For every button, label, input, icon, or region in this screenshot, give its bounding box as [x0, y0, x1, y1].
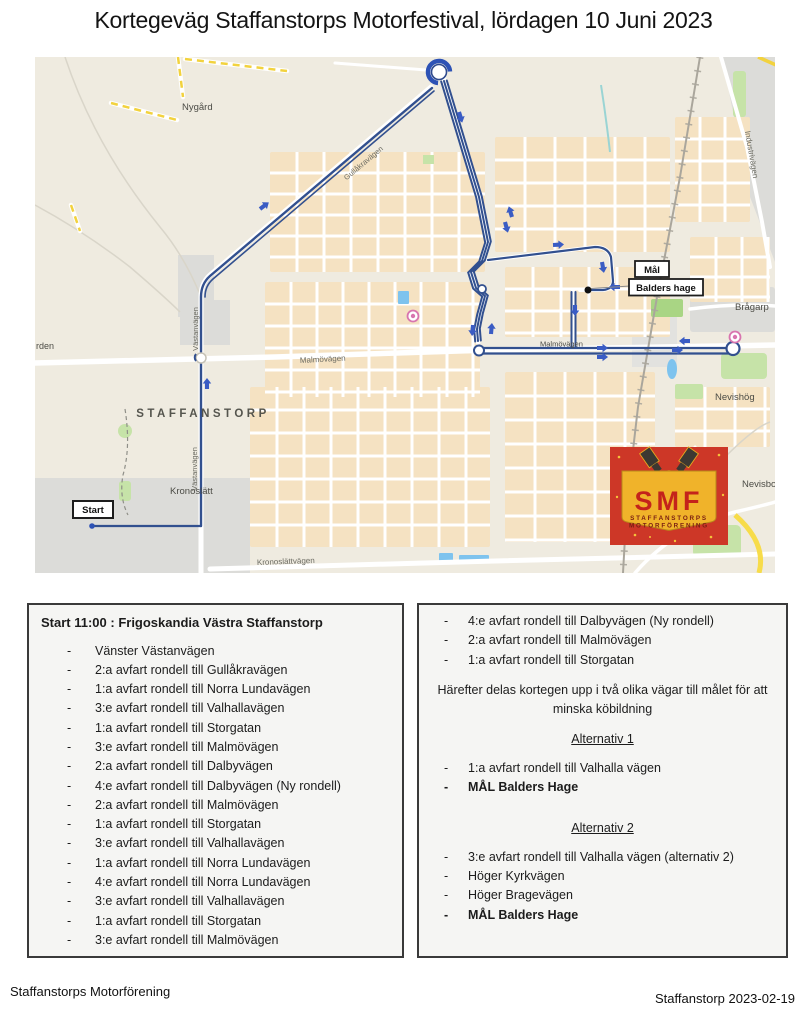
route-step: 2:a avfart rondell till Dalbyvägen: [39, 760, 392, 774]
logo-line1: STAFFANSTORPS: [630, 515, 708, 522]
route-step: 4:e avfart rondell till Dalbyvägen (Ny r…: [427, 615, 778, 629]
split-note: Härefter delas kortegen upp i två olika …: [431, 681, 774, 719]
footer-organisation: Staffanstorps Motorförening: [10, 984, 170, 999]
route-step: 4:e avfart rondell till Norra Lundavägen: [39, 876, 392, 890]
document-page: Kortegeväg Staffanstorps Motorfestival, …: [0, 0, 807, 1024]
label-bragarp: Brågarp: [735, 302, 769, 313]
alternative-2-title: Alternativ 2: [427, 822, 778, 836]
route-step: 2:a avfart rondell till Malmövägen: [39, 799, 392, 813]
alternatives-panel: 4:e avfart rondell till Dalbyvägen (Ny r…: [417, 603, 788, 958]
route-step: 2:a avfart rondell till Gullåkravägen: [39, 664, 392, 678]
route-step: Höger Bragevägen: [427, 889, 778, 903]
start-header: Start 11:00 : Frigoskandia Västra Staffa…: [41, 616, 392, 630]
logo-line2: MOTORFÖRENING: [629, 521, 709, 530]
route-steps-panel: Start 11:00 : Frigoskandia Västra Staffa…: [27, 603, 404, 958]
label-vastanvagen-south: Västanvägen: [190, 447, 199, 491]
route-step: 3:e avfart rondell till Valhallavägen: [39, 895, 392, 909]
route-step-goal: MÅL Balders Hage: [427, 781, 778, 795]
label-nygard: Nygård: [182, 102, 213, 113]
label-rden: rden: [36, 341, 54, 351]
goal-dot: [585, 287, 592, 294]
label-vastanvagen-north: Västanvägen: [191, 307, 200, 351]
route-step: 2:a avfart rondell till Malmövägen: [427, 634, 778, 648]
route-step: Höger Kyrkvägen: [427, 870, 778, 884]
route-step: 3:e avfart rondell till Malmövägen: [39, 741, 392, 755]
route-step: 3:e avfart rondell till Valhalla vägen (…: [427, 851, 778, 865]
route-step: 1:a avfart rondell till Storgatan: [39, 722, 392, 736]
logo-initials: SMF: [635, 486, 704, 516]
start-label: Start: [82, 505, 104, 516]
route-step: 1:a avfart rondell till Norra Lundavägen: [39, 857, 392, 871]
route-step: 1:a avfart rondell till Storgatan: [39, 818, 392, 832]
balders-hage-label: Balders hage: [636, 283, 696, 294]
footer-date: Staffanstorp 2023-02-19: [655, 991, 795, 1006]
map-canvas: Start Mål Balders hage Nygård rden STAFF…: [35, 57, 775, 573]
route-step: 3:e avfart rondell till Valhallavägen: [39, 702, 392, 716]
route-map: Start Mål Balders hage Nygård rden STAFF…: [35, 57, 775, 573]
route-step: 4:e avfart rondell till Dalbyvägen (Ny r…: [39, 780, 392, 794]
label-staffanstorp: STAFFANSTORP: [136, 408, 270, 420]
page-title: Kortegeväg Staffanstorps Motorfestival, …: [0, 7, 807, 34]
route-step: Vänster Västanvägen: [39, 645, 392, 659]
route-step: 1:a avfart rondell till Storgatan: [39, 915, 392, 929]
route-step: 3:e avfart rondell till Valhallavägen: [39, 837, 392, 851]
route-step: 1:a avfart rondell till Valhalla vägen: [427, 762, 778, 776]
route-step-goal: MÅL Balders Hage: [427, 909, 778, 923]
label-nevisbo: Nevisbo: [742, 479, 775, 490]
goal-label: Mål: [644, 265, 660, 276]
route-step: 1:a avfart rondell till Norra Lundavägen: [39, 683, 392, 697]
route-step: 1:a avfart rondell till Storgatan: [427, 654, 778, 668]
smf-logo: SMF STAFFANSTORPS MOTORFÖRENING: [610, 447, 728, 545]
label-nevishog: Nevishög: [715, 392, 755, 403]
alternative-1-title: Alternativ 1: [427, 733, 778, 747]
label-malmovagen-route: Malmövägen: [540, 340, 583, 349]
route-step: 3:e avfart rondell till Malmövägen: [39, 934, 392, 948]
